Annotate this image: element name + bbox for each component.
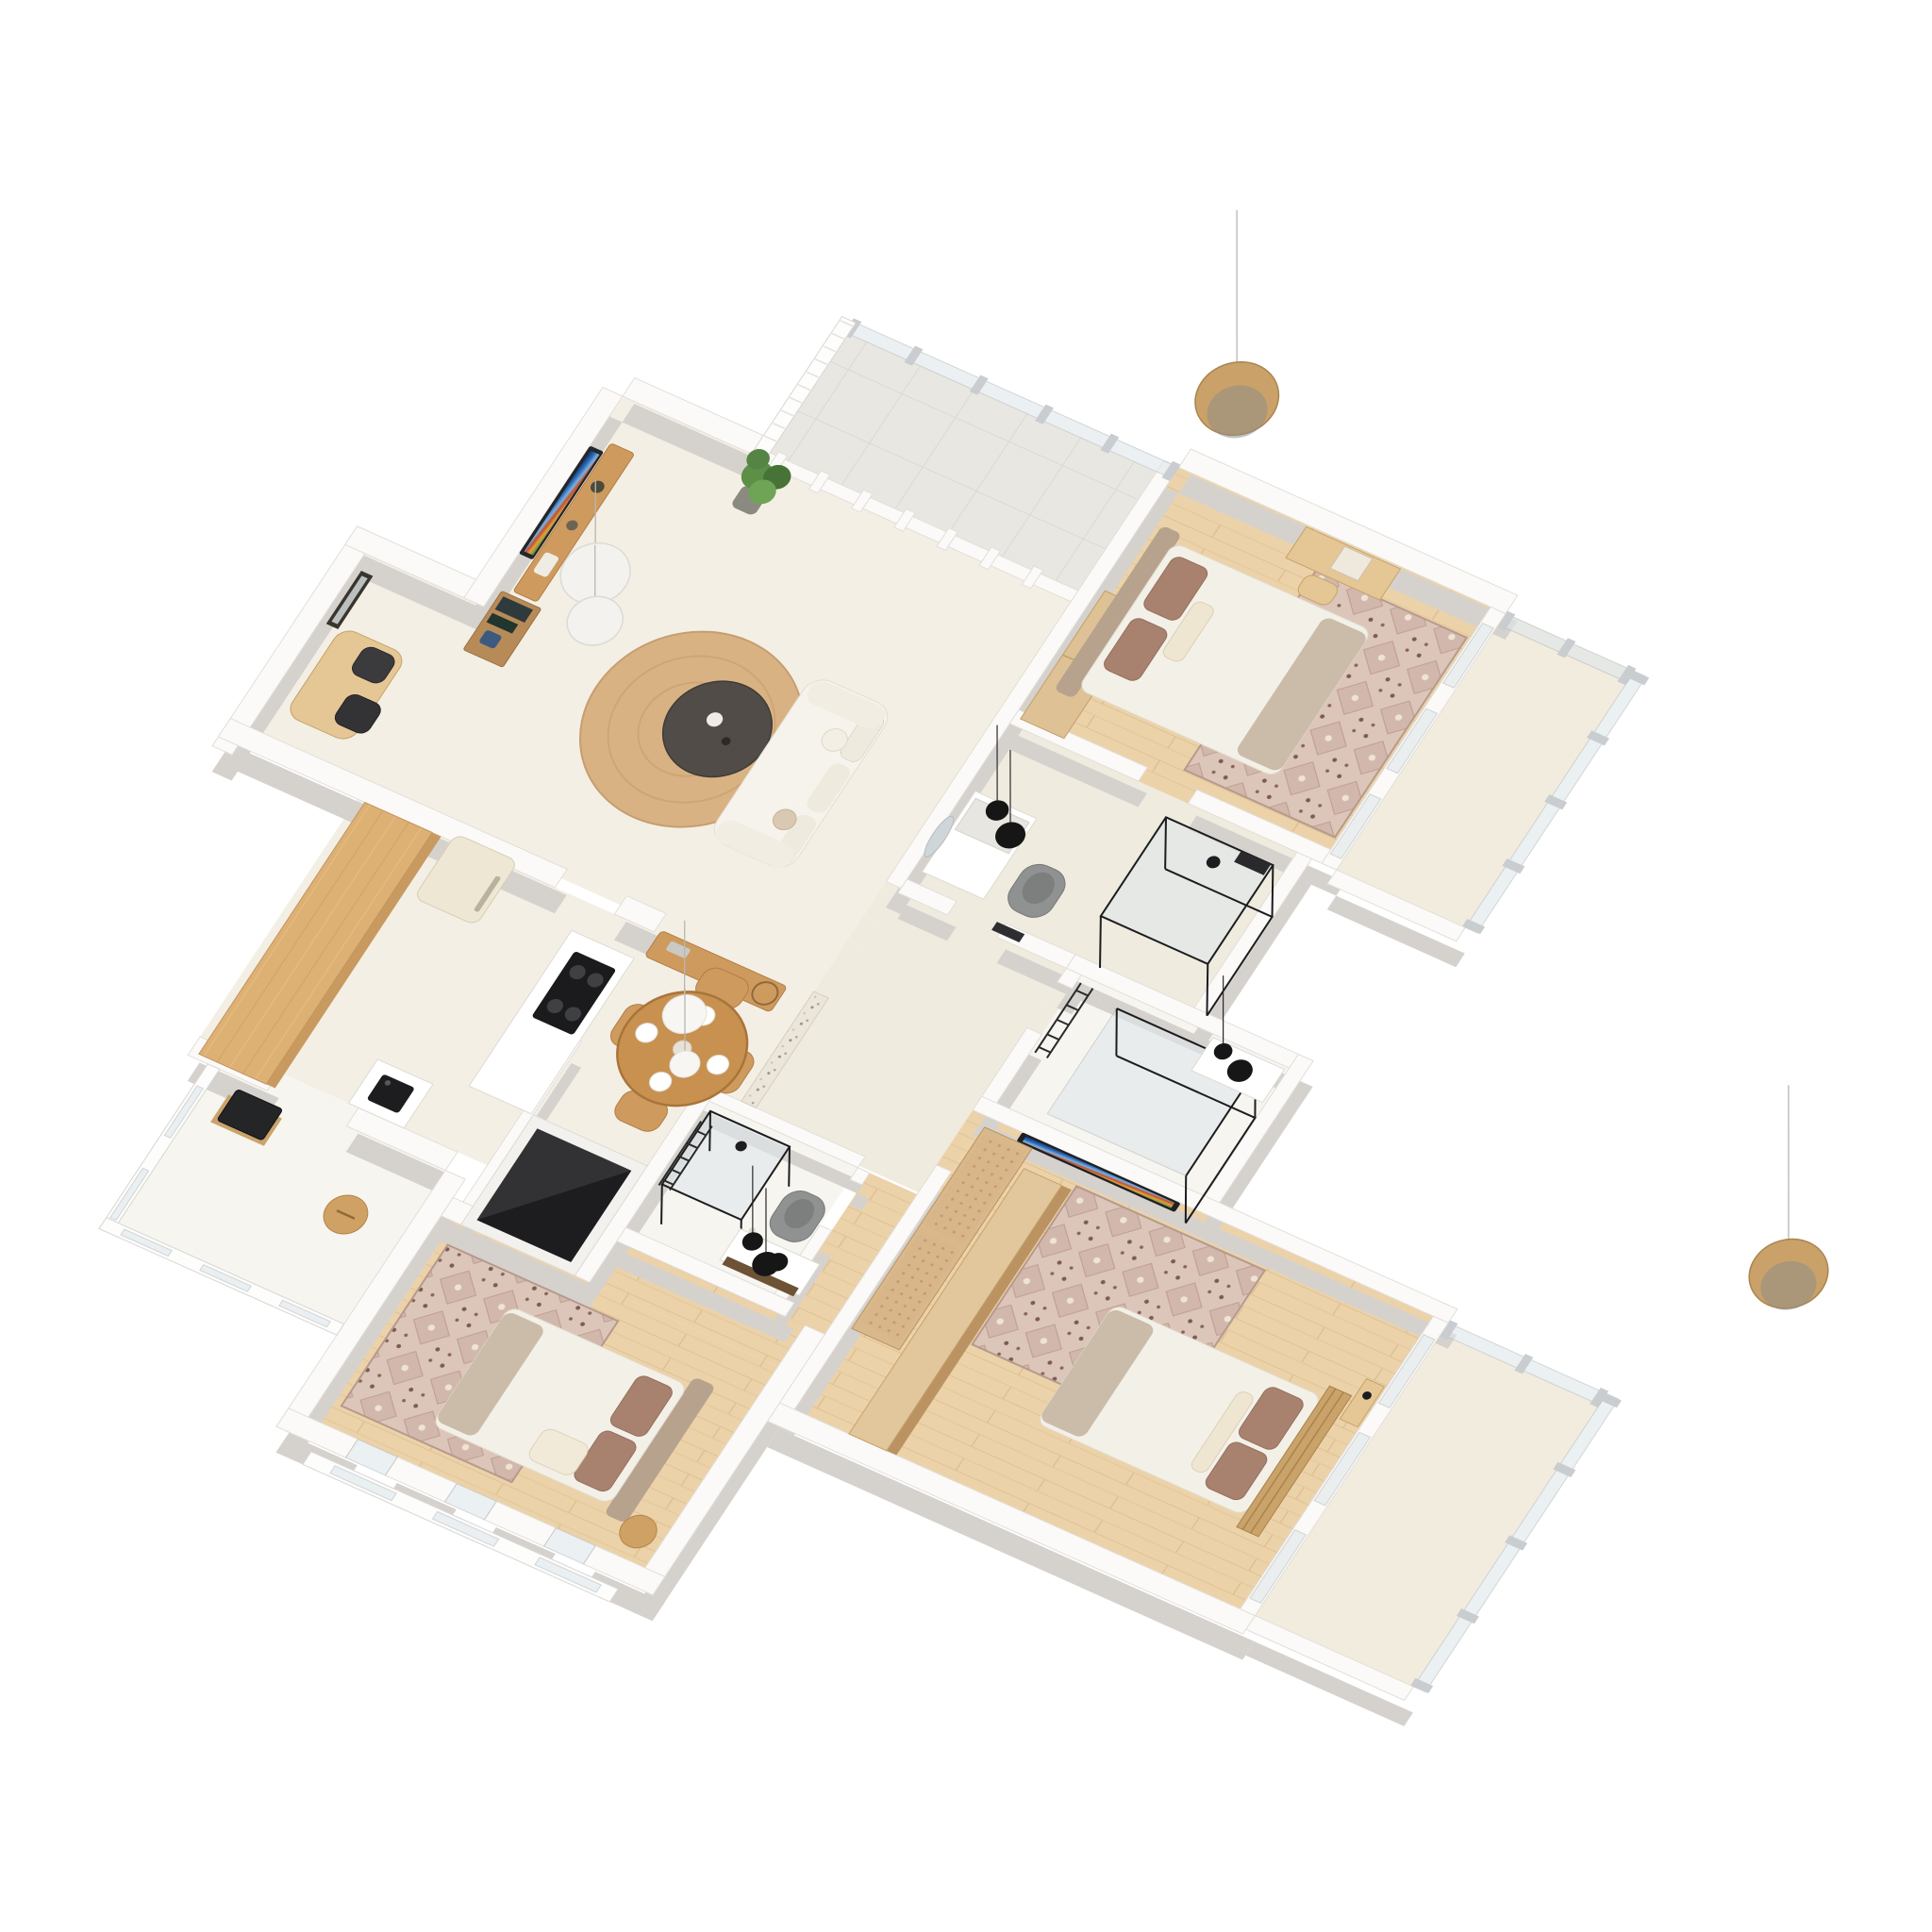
plan-projection	[0, 0, 1932, 1932]
floor-plan-render: 3D Isometric Apartment Floor Plan Render	[0, 0, 1932, 1932]
floor-plan-svg	[0, 0, 1932, 1932]
